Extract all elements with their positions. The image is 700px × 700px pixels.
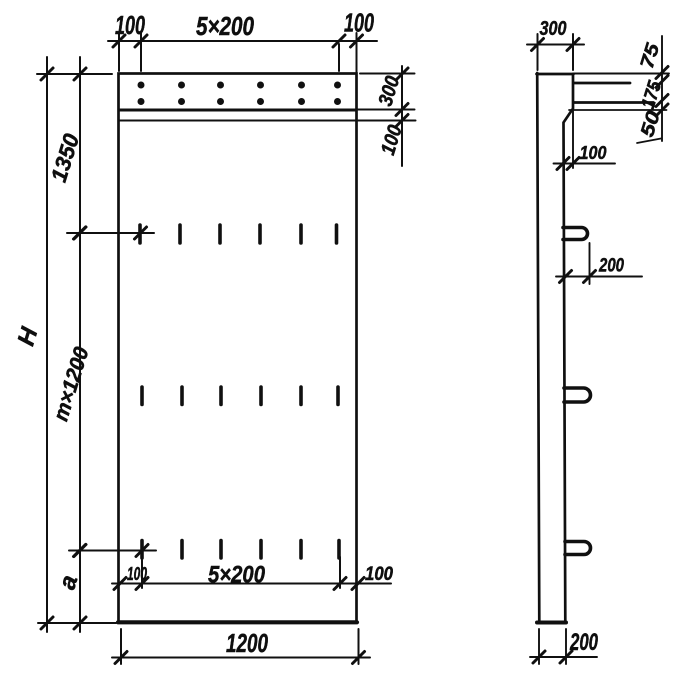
svg-text:100: 100 <box>365 564 393 585</box>
svg-text:100: 100 <box>115 10 145 40</box>
svg-text:200: 200 <box>569 629 598 656</box>
svg-text:100: 100 <box>580 143 607 163</box>
svg-text:200: 200 <box>598 256 624 277</box>
svg-text:100: 100 <box>344 8 374 38</box>
svg-text:1200: 1200 <box>226 628 268 658</box>
svg-text:5×200: 5×200 <box>208 562 266 589</box>
svg-text:300: 300 <box>540 18 567 40</box>
svg-text:100: 100 <box>127 564 147 584</box>
svg-text:5×200: 5×200 <box>196 11 254 41</box>
